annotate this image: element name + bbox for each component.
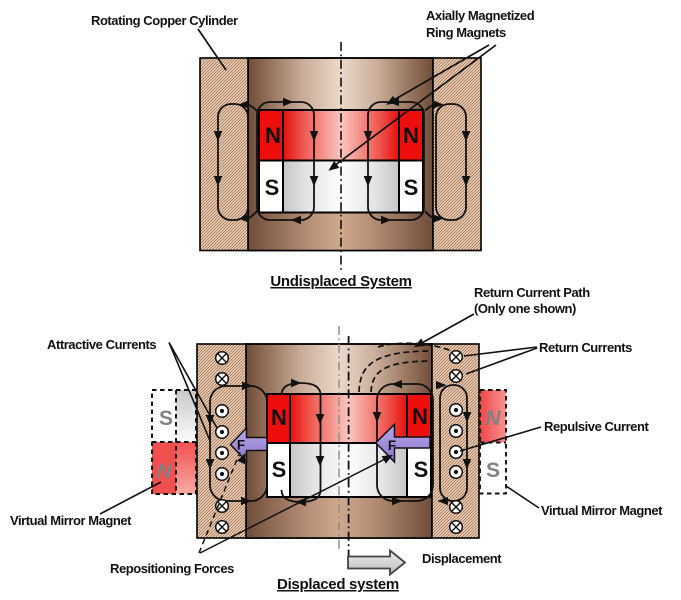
- svg-text:(Only one shown): (Only one shown): [474, 301, 576, 316]
- svg-text:S: S: [414, 457, 429, 482]
- svg-text:F: F: [237, 438, 245, 453]
- svg-text:F: F: [388, 438, 396, 453]
- svg-text:Ring Magnets: Ring Magnets: [426, 25, 506, 40]
- svg-text:N: N: [271, 405, 287, 430]
- svg-text:Return Current Path: Return Current Path: [474, 285, 590, 300]
- svg-text:S: S: [486, 459, 500, 482]
- svg-text:N: N: [156, 460, 172, 483]
- svg-text:Axially Magnetized: Axially Magnetized: [426, 8, 535, 23]
- svg-text:N: N: [265, 123, 281, 148]
- svg-text:S: S: [265, 175, 280, 200]
- svg-text:Attractive Currents: Attractive Currents: [47, 337, 156, 352]
- svg-text:N: N: [412, 404, 428, 429]
- svg-text:S: S: [404, 175, 419, 200]
- svg-text:Virtual Mirror Magnet: Virtual Mirror Magnet: [10, 513, 132, 528]
- svg-text:Displacement: Displacement: [422, 551, 502, 566]
- svg-text:N: N: [485, 407, 501, 430]
- svg-text:Repositioning Forces: Repositioning Forces: [110, 561, 234, 576]
- svg-text:Displaced system: Displaced system: [277, 576, 399, 593]
- svg-text:N: N: [403, 123, 419, 148]
- svg-text:Virtual Mirror Magnet: Virtual Mirror Magnet: [541, 503, 663, 518]
- svg-text:Undisplaced System: Undisplaced System: [270, 273, 411, 290]
- svg-text:Rotating Copper Cylinder: Rotating Copper Cylinder: [91, 13, 238, 28]
- svg-text:S: S: [159, 407, 173, 430]
- svg-text:S: S: [272, 457, 287, 482]
- svg-text:Return Currents: Return Currents: [539, 340, 632, 355]
- svg-text:Repulsive Current: Repulsive Current: [544, 419, 649, 434]
